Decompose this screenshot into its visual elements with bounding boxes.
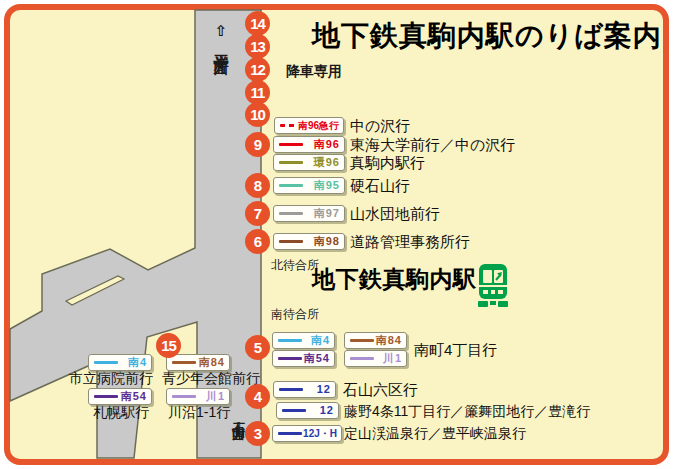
page-title: 地下鉄真駒内駅のりば案内 [312,17,662,55]
route-badge-minami98: 南98 [273,233,345,250]
route-code: 12 [303,384,331,395]
route-code: 川1 [196,391,225,402]
destination-label: 硬石山行 [350,178,410,195]
route-badge-minami54-west: 南54 [88,388,152,405]
route-line-icon [278,432,302,435]
route-line-icon [279,212,303,215]
route-line-icon [279,161,303,164]
route-line-icon [172,395,196,398]
route-line-icon [282,409,306,412]
route-line-icon [350,339,374,342]
route-line-icon [280,124,298,127]
route-line-icon [94,395,118,398]
route-code: 南54 [118,391,147,402]
destination-label: 札幌駅行 [93,405,149,420]
destination-label: 青少年会館前行 [162,371,260,386]
route-badge-kawa1-west: 川1 [166,388,230,405]
route-badge-minami84-west: 南84 [166,354,230,371]
direction-label-hiragishi: ⇧平岸方面 [214,22,229,50]
route-code: 南4 [302,335,330,346]
station-name: 地下鉄真駒内駅 [312,264,477,295]
stop-number-3: 3 [245,421,270,446]
route-code: 川1 [374,353,402,364]
route-badge-minami96: 南96 [273,136,345,153]
route-code: 12 [306,405,334,416]
train-icon [476,263,510,309]
route-badge-minami96-express: 南96急行 [274,117,344,134]
stop-number-9: 9 [245,132,270,157]
route-line-icon [172,361,196,364]
map-area: ⇧平岸方面 石山方面⇩ 地下鉄真駒内駅のりば案内 降車専用 14 13 12 1… [4,4,669,465]
bus-stop-guide-sign: ⇧平岸方面 石山方面⇩ 地下鉄真駒内駅のりば案内 降車専用 14 13 12 1… [0,0,673,469]
route-badge-kan96: 環96 [273,154,345,171]
route-code: 南96急行 [298,121,339,131]
route-code: 南98 [303,236,340,247]
route-line-icon [278,357,302,360]
stop-number-10: 10 [245,102,270,127]
destination-label: 川沿1-1行 [168,405,230,420]
route-badge-12-b: 12 [276,402,339,419]
route-line-icon [279,388,303,391]
destination-label: 定山渓温泉行／豊平峡温泉行 [344,426,526,441]
route-badge-12jh: 12J・H [272,425,342,442]
route-badge-kawa1-east: 川1 [344,350,407,367]
destination-label: 石山六区行 [343,382,418,399]
route-code: 南95 [303,180,340,191]
route-badge-minami4-west: 南4 [88,354,152,371]
south-waiting-area-label: 南待合所 [271,306,319,323]
destination-label: 東海大学前行／中の沢行 [350,137,515,154]
destination-label: 藤野4条11丁目行／簾舞団地行／豊滝行 [344,404,590,419]
route-code: 南84 [196,357,225,368]
destination-label: 南町4丁目行 [414,342,497,359]
route-code: 南84 [374,335,402,346]
stop-number-7: 7 [245,201,270,226]
route-badge-minami4-east: 南4 [272,332,335,349]
route-code: 南96 [303,139,340,150]
destination-label: 市立病院前行 [69,371,153,386]
route-badge-12-a: 12 [273,381,336,398]
destination-label: 道路管理事務所行 [350,234,470,251]
route-badge-minami84-east: 南84 [344,332,407,349]
drop-off-only-label: 降車専用 [286,63,342,81]
route-line-icon [279,143,303,146]
route-code: 環96 [303,157,340,168]
destination-label: 山水団地前行 [350,206,440,223]
stop-number-13: 13 [245,34,270,59]
direction-label-ishiyama: 石山方面⇩ [232,412,245,437]
stop-number-5: 5 [245,335,270,360]
route-badge-minami97: 南97 [273,205,345,222]
route-line-icon [278,339,302,342]
route-line-icon [94,361,118,364]
route-code: 12J・H [302,429,337,439]
route-code: 南4 [118,357,147,368]
route-badge-minami54-east: 南54 [272,350,335,367]
route-code: 南54 [302,353,330,364]
route-line-icon [279,184,303,187]
stop-number-12: 12 [245,57,270,82]
route-line-icon [279,240,303,243]
stop-number-15: 15 [156,333,181,358]
stop-number-8: 8 [245,173,270,198]
route-line-icon [350,357,374,360]
destination-label: 中の沢行 [350,118,410,135]
destination-label: 真駒内駅行 [350,155,425,172]
stop-number-6: 6 [245,229,270,254]
route-code: 南97 [303,208,340,219]
stop-number-4: 4 [245,384,270,409]
route-badge-minami95: 南95 [273,177,345,194]
stop-number-14: 14 [245,11,270,36]
